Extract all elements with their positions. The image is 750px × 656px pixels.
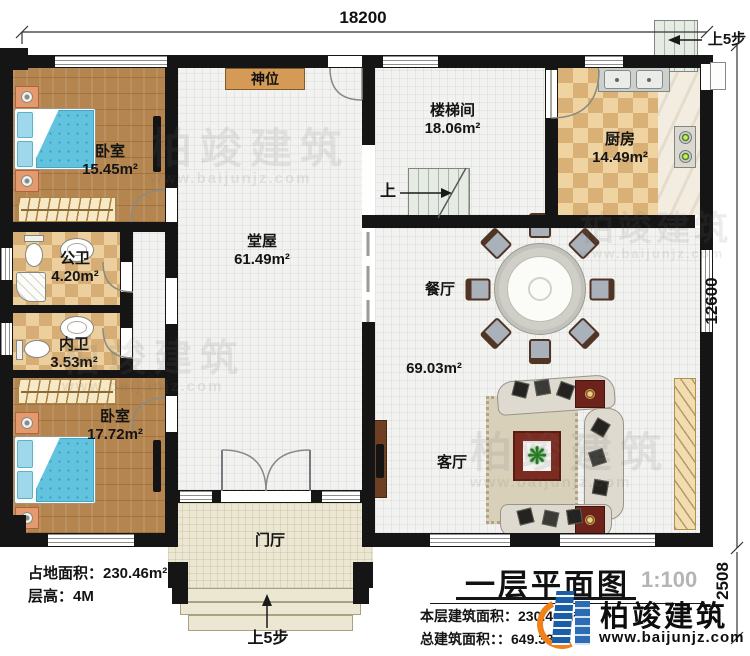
window <box>180 491 212 502</box>
bed-sheet <box>36 438 62 502</box>
floor-plan: ❋ 神位 <box>0 0 750 656</box>
pillow-icon <box>17 440 33 468</box>
dining-table-center <box>528 277 552 301</box>
chair-icon <box>529 339 551 364</box>
chair-icon <box>590 279 615 301</box>
pillow-icon <box>17 112 33 138</box>
room-area: 4.20m² <box>25 268 125 286</box>
wall <box>362 215 558 228</box>
dimension-line-top <box>16 26 713 44</box>
wall <box>8 222 168 232</box>
steps-up-right-label: 上5步 <box>704 31 750 49</box>
bath-nook-opening <box>166 278 177 324</box>
plant-icon: ❋ <box>527 445 547 469</box>
cushion-icon <box>566 508 583 525</box>
bath-nook-floor <box>133 232 165 378</box>
bedroom2-door-opening <box>166 396 177 432</box>
room-name: 楼梯间 <box>390 102 515 120</box>
interior-stairs <box>408 168 470 218</box>
living-label: 客厅 <box>420 454 484 472</box>
pillow-icon <box>17 141 33 167</box>
dimension-line-right-upper <box>731 39 743 554</box>
room-area: 17.72m² <box>65 426 165 444</box>
room-area: 3.53m² <box>24 354 124 372</box>
tv-icon <box>153 440 161 492</box>
room-name: 卧室 <box>65 408 165 426</box>
porch-step <box>172 588 369 602</box>
room-name: 厨房 <box>560 131 680 149</box>
bedroom1-label: 卧室 15.45m² <box>60 143 160 178</box>
window <box>430 534 510 546</box>
stairs-up-label: 上 <box>378 183 398 202</box>
dining-label: 餐厅 <box>408 281 472 299</box>
room-name: 内卫 <box>24 336 124 354</box>
land-area-text: 占地面积：230.46m² <box>28 562 248 583</box>
porch-pillar <box>353 588 369 604</box>
window <box>1 323 12 355</box>
room-area: 18.06m² <box>390 120 515 138</box>
hall-label: 堂屋 61.49m² <box>212 233 312 268</box>
toilet-tank <box>24 235 44 242</box>
porch-pillar <box>353 562 373 588</box>
end-table-icon <box>575 380 605 408</box>
porch-step <box>188 615 353 631</box>
brand-website: www.baijunjz.com <box>599 629 749 646</box>
shrine: 神位 <box>225 68 305 90</box>
side-door-leaf <box>710 62 726 90</box>
lamp-icon <box>21 91 33 103</box>
window <box>1 248 12 280</box>
window <box>383 56 438 67</box>
porch-step <box>180 602 361 615</box>
window <box>585 56 623 67</box>
tv-icon <box>376 444 384 478</box>
window <box>55 56 167 67</box>
shrine-label: 神位 <box>251 71 279 87</box>
stair-hall-label: 楼梯间 18.06m² <box>390 102 515 137</box>
room-area: 14.49m² <box>560 149 680 167</box>
dimension-right-upper: 12600 <box>702 256 722 346</box>
kitchen-door-opening <box>546 70 557 118</box>
dimension-top: 18200 <box>328 8 398 28</box>
foyer-label: 门厅 <box>238 532 302 550</box>
room-name: 公卫 <box>25 250 125 268</box>
inner-bath-label: 内卫 3.53m² <box>24 336 124 371</box>
wardrobe-icon <box>18 197 116 222</box>
side-cabinet-icon <box>674 378 696 530</box>
nightstand-icon <box>15 86 39 108</box>
wardrobe-icon <box>18 379 116 404</box>
wall <box>8 305 133 313</box>
wall <box>362 55 375 145</box>
brand-logo-icon <box>537 589 597 651</box>
bed-sheet <box>36 110 62 168</box>
cushion-icon <box>542 510 560 528</box>
entry-door-opening <box>221 491 311 502</box>
room-area: 15.45m² <box>60 161 160 179</box>
wall <box>0 55 13 547</box>
wall <box>545 215 695 228</box>
public-bath-label: 公卫 4.20m² <box>25 250 125 285</box>
hall-floor <box>178 68 362 490</box>
back-door-opening <box>328 56 362 67</box>
kitchen-sink-icon <box>598 66 670 92</box>
lamp-icon <box>21 417 33 429</box>
combined-area-label: 69.03m² <box>390 360 478 378</box>
wall <box>362 490 375 547</box>
steps-up-bottom-label: 上5步 <box>238 630 298 649</box>
floor-height-text: 层高：4M <box>28 585 188 606</box>
pillow-icon <box>17 471 33 499</box>
floor-area-text: 本层建筑面积：230.46m² <box>420 606 630 626</box>
cushion-icon <box>534 379 551 396</box>
logo-building <box>575 601 590 645</box>
window <box>560 534 655 546</box>
nightstand-icon <box>15 412 39 434</box>
bedroom2-label: 卧室 17.72m² <box>65 408 165 443</box>
room-area: 61.49m² <box>212 251 312 269</box>
wall <box>362 533 713 547</box>
toilet-tank <box>16 340 23 360</box>
room-name: 卧室 <box>60 143 160 161</box>
window <box>48 534 134 546</box>
wall <box>362 322 375 490</box>
bedroom1-door-opening <box>166 188 177 222</box>
plan-scale: 1:100 <box>641 567 697 593</box>
lamp-icon <box>21 175 33 187</box>
kitchen-label: 厨房 14.49m² <box>560 131 680 166</box>
window <box>322 491 360 502</box>
room-name: 堂屋 <box>212 233 312 251</box>
cushion-icon <box>592 479 609 496</box>
nightstand-icon <box>15 170 39 192</box>
